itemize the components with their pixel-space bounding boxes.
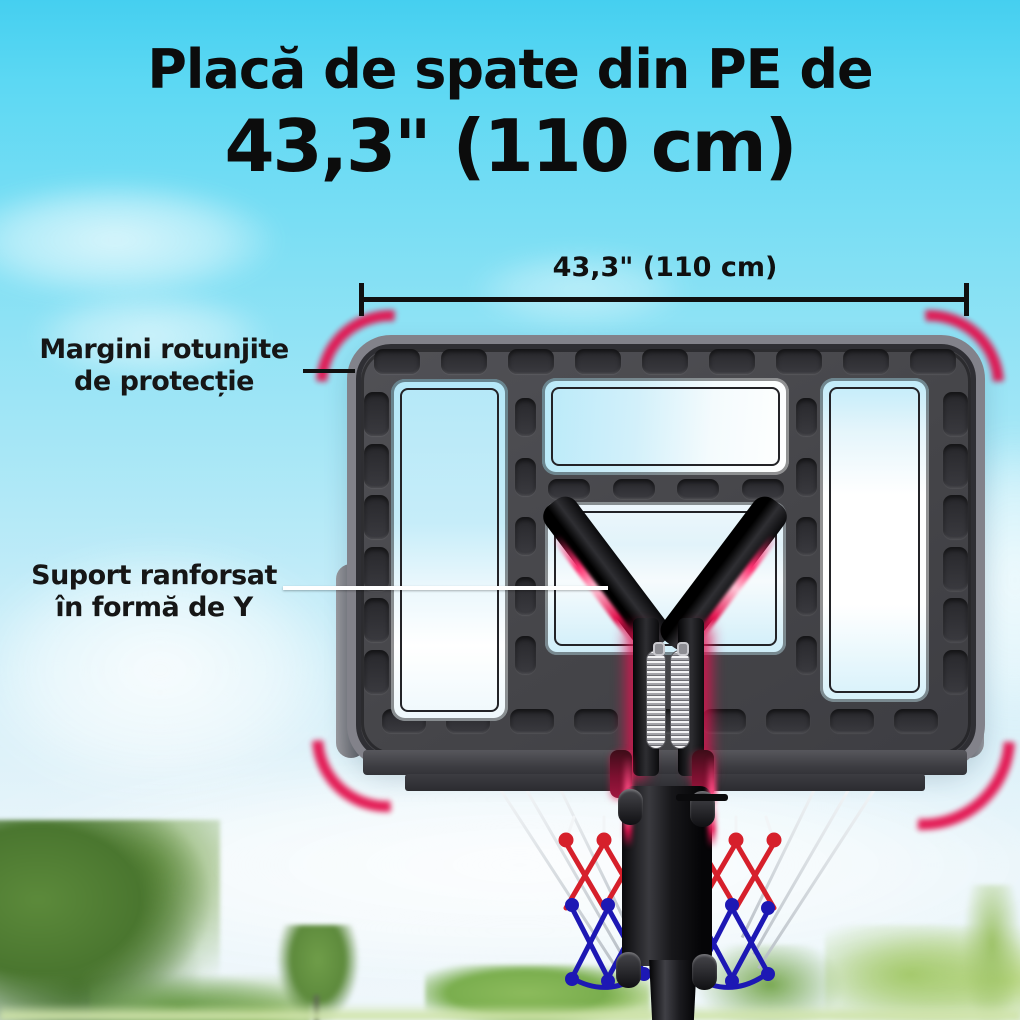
- dimple: [364, 444, 389, 488]
- window-right: [820, 378, 929, 702]
- bracket-knob: [618, 789, 643, 825]
- bracket-pin: [676, 794, 728, 801]
- backboard-bottom-bar: [363, 750, 967, 775]
- bracket-knob: [616, 952, 641, 988]
- dimple: [574, 709, 618, 733]
- dimple: [766, 709, 810, 733]
- dimple: [943, 392, 968, 436]
- dimple: [364, 598, 389, 642]
- callout-rounded-edges: Margini rotunjite de protecție: [18, 334, 310, 398]
- page-title-line1: Placă de spate din PE de: [0, 38, 1020, 101]
- dimension-tick-left: [359, 283, 364, 316]
- dimple: [796, 636, 817, 674]
- spring-left: [646, 650, 666, 749]
- dimple: [515, 517, 536, 555]
- dimple-col-mid-right: [796, 398, 817, 674]
- window-left: [391, 379, 508, 721]
- dimple: [364, 650, 389, 694]
- dimple: [508, 349, 554, 374]
- dimple: [776, 349, 822, 374]
- cloud: [0, 180, 280, 300]
- dimple-col-right: [943, 392, 968, 694]
- dimple: [515, 458, 536, 496]
- dimple: [943, 495, 968, 539]
- callout-y-support-line1: Suport ranforsat: [12, 560, 296, 592]
- callout-y-support: Suport ranforsat în formă de Y: [12, 560, 296, 624]
- dimple: [515, 577, 536, 615]
- dimple-col-left: [364, 392, 389, 694]
- dimple: [613, 479, 655, 499]
- window-top-center-outline: [551, 387, 780, 466]
- dimple: [910, 349, 956, 374]
- dimple: [943, 547, 968, 591]
- pointer-line-rounded-edges: [303, 369, 355, 373]
- bracket-knob: [692, 954, 717, 990]
- dimple-row-center: [548, 479, 784, 499]
- dimple: [575, 349, 621, 374]
- callout-y-support-line2: în formă de Y: [12, 592, 296, 624]
- shrub-far-right: [962, 885, 1020, 1020]
- dimple: [943, 650, 968, 694]
- window-right-outline: [829, 387, 920, 693]
- dimple-row-top: [374, 349, 956, 374]
- window-top-center: [542, 378, 789, 475]
- dimple: [374, 349, 420, 374]
- dimple: [843, 349, 889, 374]
- dimple: [515, 398, 536, 436]
- dimple: [364, 547, 389, 591]
- window-left-outline: [400, 388, 499, 712]
- dimple: [796, 398, 817, 436]
- dimple: [709, 349, 755, 374]
- dimension-label: 43,3" (110 cm): [365, 252, 965, 283]
- dimple: [441, 349, 487, 374]
- callout-rounded-edges-line1: Margini rotunjite: [18, 334, 310, 366]
- dimple: [642, 349, 688, 374]
- dimple: [943, 444, 968, 488]
- dimple: [796, 517, 817, 555]
- spring-right: [670, 650, 690, 749]
- product-infographic: Placă de spate din PE de 43,3" (110 cm) …: [0, 0, 1020, 1020]
- dimension-line: [362, 297, 968, 302]
- callout-rounded-edges-line2: de protecție: [18, 366, 310, 398]
- dimple: [510, 709, 554, 733]
- dimple-col-mid-left: [515, 398, 536, 674]
- dimple: [943, 598, 968, 642]
- pointer-line-y-support: [283, 586, 608, 590]
- dimple: [796, 458, 817, 496]
- dimple: [702, 709, 746, 733]
- dimple: [677, 479, 719, 499]
- page-title-line2: 43,3" (110 cm): [0, 104, 1020, 188]
- dimple: [830, 709, 874, 733]
- dimple: [894, 709, 938, 733]
- dimple: [364, 392, 389, 436]
- dimple: [796, 577, 817, 615]
- dimple: [515, 636, 536, 674]
- grass-strip: [0, 1004, 1020, 1020]
- dimple: [364, 495, 389, 539]
- dimension-tick-right: [964, 283, 969, 316]
